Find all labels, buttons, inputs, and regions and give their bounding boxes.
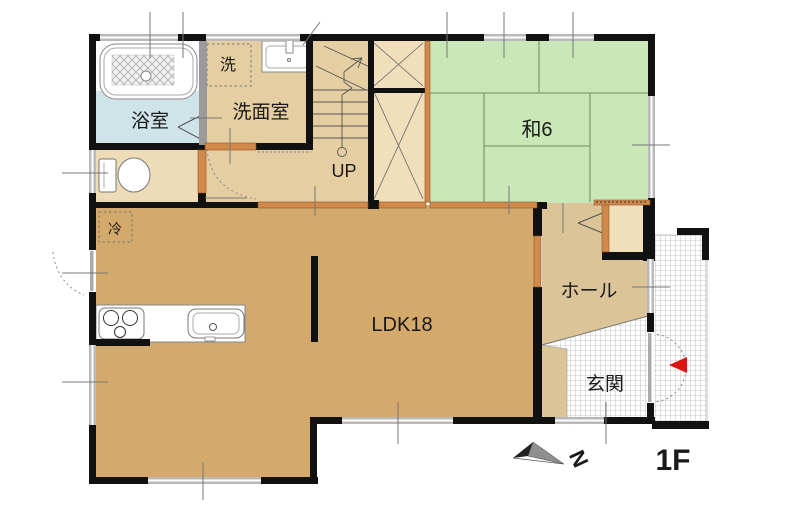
stairs-up-label: UP — [331, 161, 356, 181]
window — [484, 34, 526, 41]
north-arrow: N — [513, 442, 593, 471]
japanese-room-label: 和6 — [521, 118, 552, 141]
bathroom-label: 浴室 — [131, 110, 169, 132]
window — [89, 345, 96, 425]
porch-tile-floor — [652, 235, 707, 422]
kitchen-sink — [188, 309, 244, 341]
window — [647, 259, 654, 313]
washroom-sink — [262, 40, 312, 72]
toilet-door — [198, 150, 206, 193]
closet-back-frame — [425, 41, 430, 202]
stove — [99, 308, 144, 339]
shoe-closet-floor — [607, 205, 645, 254]
staircase-floor — [311, 41, 370, 150]
washroom-label: 洗面室 — [232, 101, 289, 123]
entrance-label: 玄関 — [586, 373, 624, 395]
kitchen-counter — [96, 305, 245, 342]
japanese-room-sliding-door — [430, 202, 537, 208]
compass-north-label: N — [564, 446, 593, 471]
laundry-label: 洗 — [220, 56, 236, 74]
window — [148, 477, 261, 484]
window — [206, 34, 300, 41]
window — [555, 417, 604, 424]
ldk-corridor-sliding-door — [258, 202, 368, 208]
ldk-side-door-leaf — [90, 251, 94, 291]
window — [89, 150, 96, 193]
floor-plan-svg: N 浴室 洗面室 洗 UP 和6 冷 LDK18 ホール 玄関 1F — [0, 0, 794, 521]
ldk-label: LDK18 — [371, 314, 432, 336]
bathtub — [100, 44, 197, 99]
window — [648, 96, 655, 198]
hall-ldk-door — [534, 236, 541, 287]
refrigerator-label: 冷 — [108, 221, 122, 237]
bathroom-partition-wall — [199, 41, 207, 145]
toilet — [99, 158, 150, 192]
shoe-closet-door — [602, 205, 609, 252]
floor-number-label: 1F — [655, 444, 690, 477]
floor-plan-page: N 浴室 洗面室 洗 UP 和6 冷 LDK18 ホール 玄関 1F — [0, 0, 794, 521]
front-door-leaf — [648, 333, 652, 402]
hall-label: ホール — [560, 281, 617, 302]
closet-sliding-door — [379, 202, 426, 208]
window — [100, 34, 178, 41]
window — [549, 34, 594, 41]
